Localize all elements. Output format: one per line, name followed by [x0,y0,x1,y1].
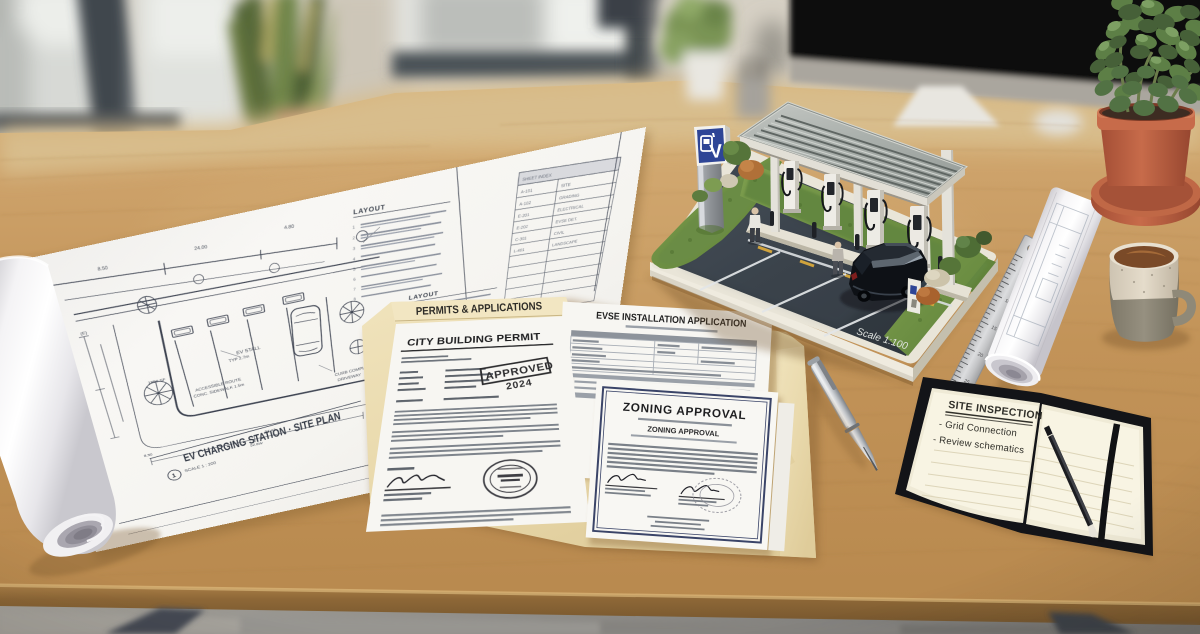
svg-text:SITE INSPECTION: SITE INSPECTION [948,399,1044,422]
svg-text:ZONING APPROVAL: ZONING APPROVAL [647,424,720,438]
svg-text:8: 8 [353,297,356,302]
svg-text:4: 4 [353,257,356,262]
svg-text:ZONING APPROVAL: ZONING APPROVAL [622,400,747,423]
svg-text:10: 10 [1004,298,1012,306]
svg-text:15: 15 [990,325,998,333]
svg-text:6: 6 [353,277,356,282]
svg-text:Scale 1:100: Scale 1:100 [855,326,909,352]
svg-text:1: 1 [352,225,355,230]
svg-text:5: 5 [353,267,356,272]
svg-text:V: V [709,141,723,163]
svg-text:- Review schematics: - Review schematics [932,434,1024,456]
svg-text:25: 25 [963,378,971,386]
svg-text:7: 7 [353,287,356,292]
svg-text:3: 3 [353,246,356,251]
svg-text:2: 2 [353,236,356,241]
svg-text:- Grid Connection: - Grid Connection [938,419,1017,439]
svg-text:5: 5 [1017,271,1022,278]
svg-text:20: 20 [976,351,984,359]
